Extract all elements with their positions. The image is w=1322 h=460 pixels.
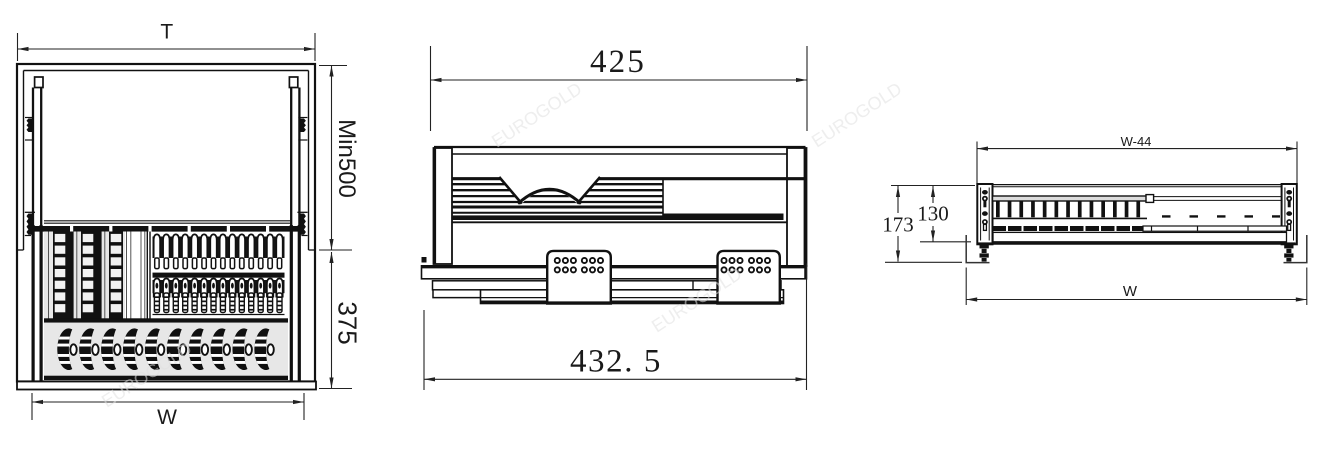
svg-text:T: T [160,21,173,44]
svg-text:173: 173 [882,213,914,237]
svg-text:W-44: W-44 [1121,134,1152,149]
svg-text:432. 5: 432. 5 [570,344,662,380]
svg-text:EUROGOLD: EUROGOLD [488,79,585,152]
svg-text:130: 130 [917,202,949,226]
svg-text:EUROGOLD: EUROGOLD [808,79,905,152]
svg-text:Min500: Min500 [333,119,360,198]
svg-text:W: W [1123,283,1138,300]
svg-text:425: 425 [590,44,646,80]
svg-text:W: W [157,406,177,429]
svg-text:375: 375 [333,301,363,344]
